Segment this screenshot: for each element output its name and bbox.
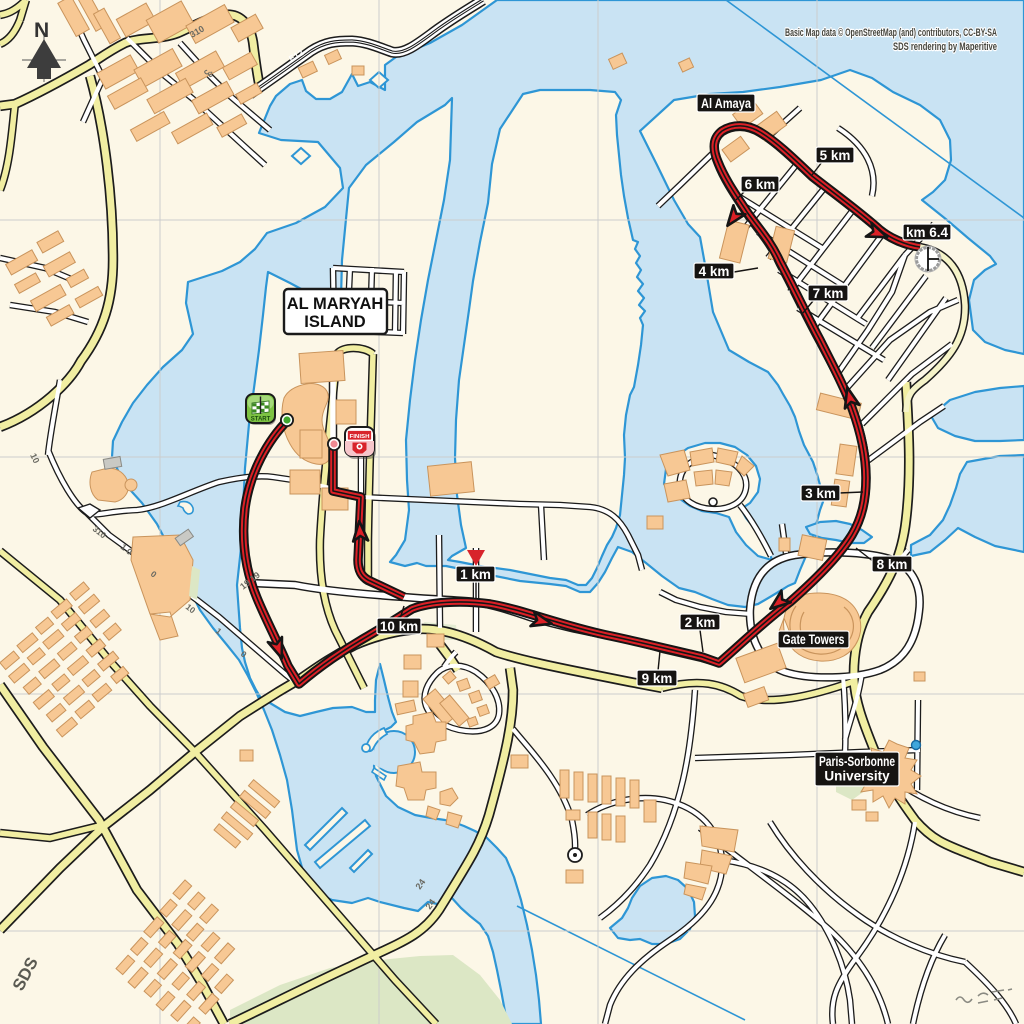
svg-text:Gate Towers: Gate Towers: [783, 632, 845, 647]
svg-text:University: University: [824, 769, 890, 784]
svg-text:Al Amaya: Al Amaya: [701, 96, 751, 111]
svg-text:9 km: 9 km: [642, 671, 673, 686]
svg-text:1 km: 1 km: [460, 567, 491, 582]
svg-text:10 km: 10 km: [380, 619, 418, 634]
svg-text:START: START: [251, 417, 271, 423]
svg-text:km 6.4: km 6.4: [906, 225, 949, 240]
svg-text:FINISH: FINISH: [350, 434, 370, 440]
svg-text:6 km: 6 km: [745, 177, 776, 192]
svg-text:5 km: 5 km: [820, 148, 851, 163]
svg-text:2 km: 2 km: [685, 615, 716, 630]
svg-text:Basic Map data © OpenStreetMap: Basic Map data © OpenStreetMap (and) con…: [785, 27, 997, 39]
svg-text:3 km: 3 km: [805, 486, 836, 501]
svg-text:N: N: [34, 19, 49, 42]
svg-text:AL MARYAH: AL MARYAH: [287, 295, 384, 313]
svg-text:ISLAND: ISLAND: [304, 313, 366, 331]
svg-text:Paris-Sorbonne: Paris-Sorbonne: [819, 754, 895, 769]
svg-text:8 km: 8 km: [877, 557, 908, 572]
svg-text:7 km: 7 km: [813, 286, 844, 301]
svg-text:SDS rendering by Maperitive: SDS rendering by Maperitive: [893, 41, 997, 53]
svg-text:4 km: 4 km: [699, 264, 730, 279]
